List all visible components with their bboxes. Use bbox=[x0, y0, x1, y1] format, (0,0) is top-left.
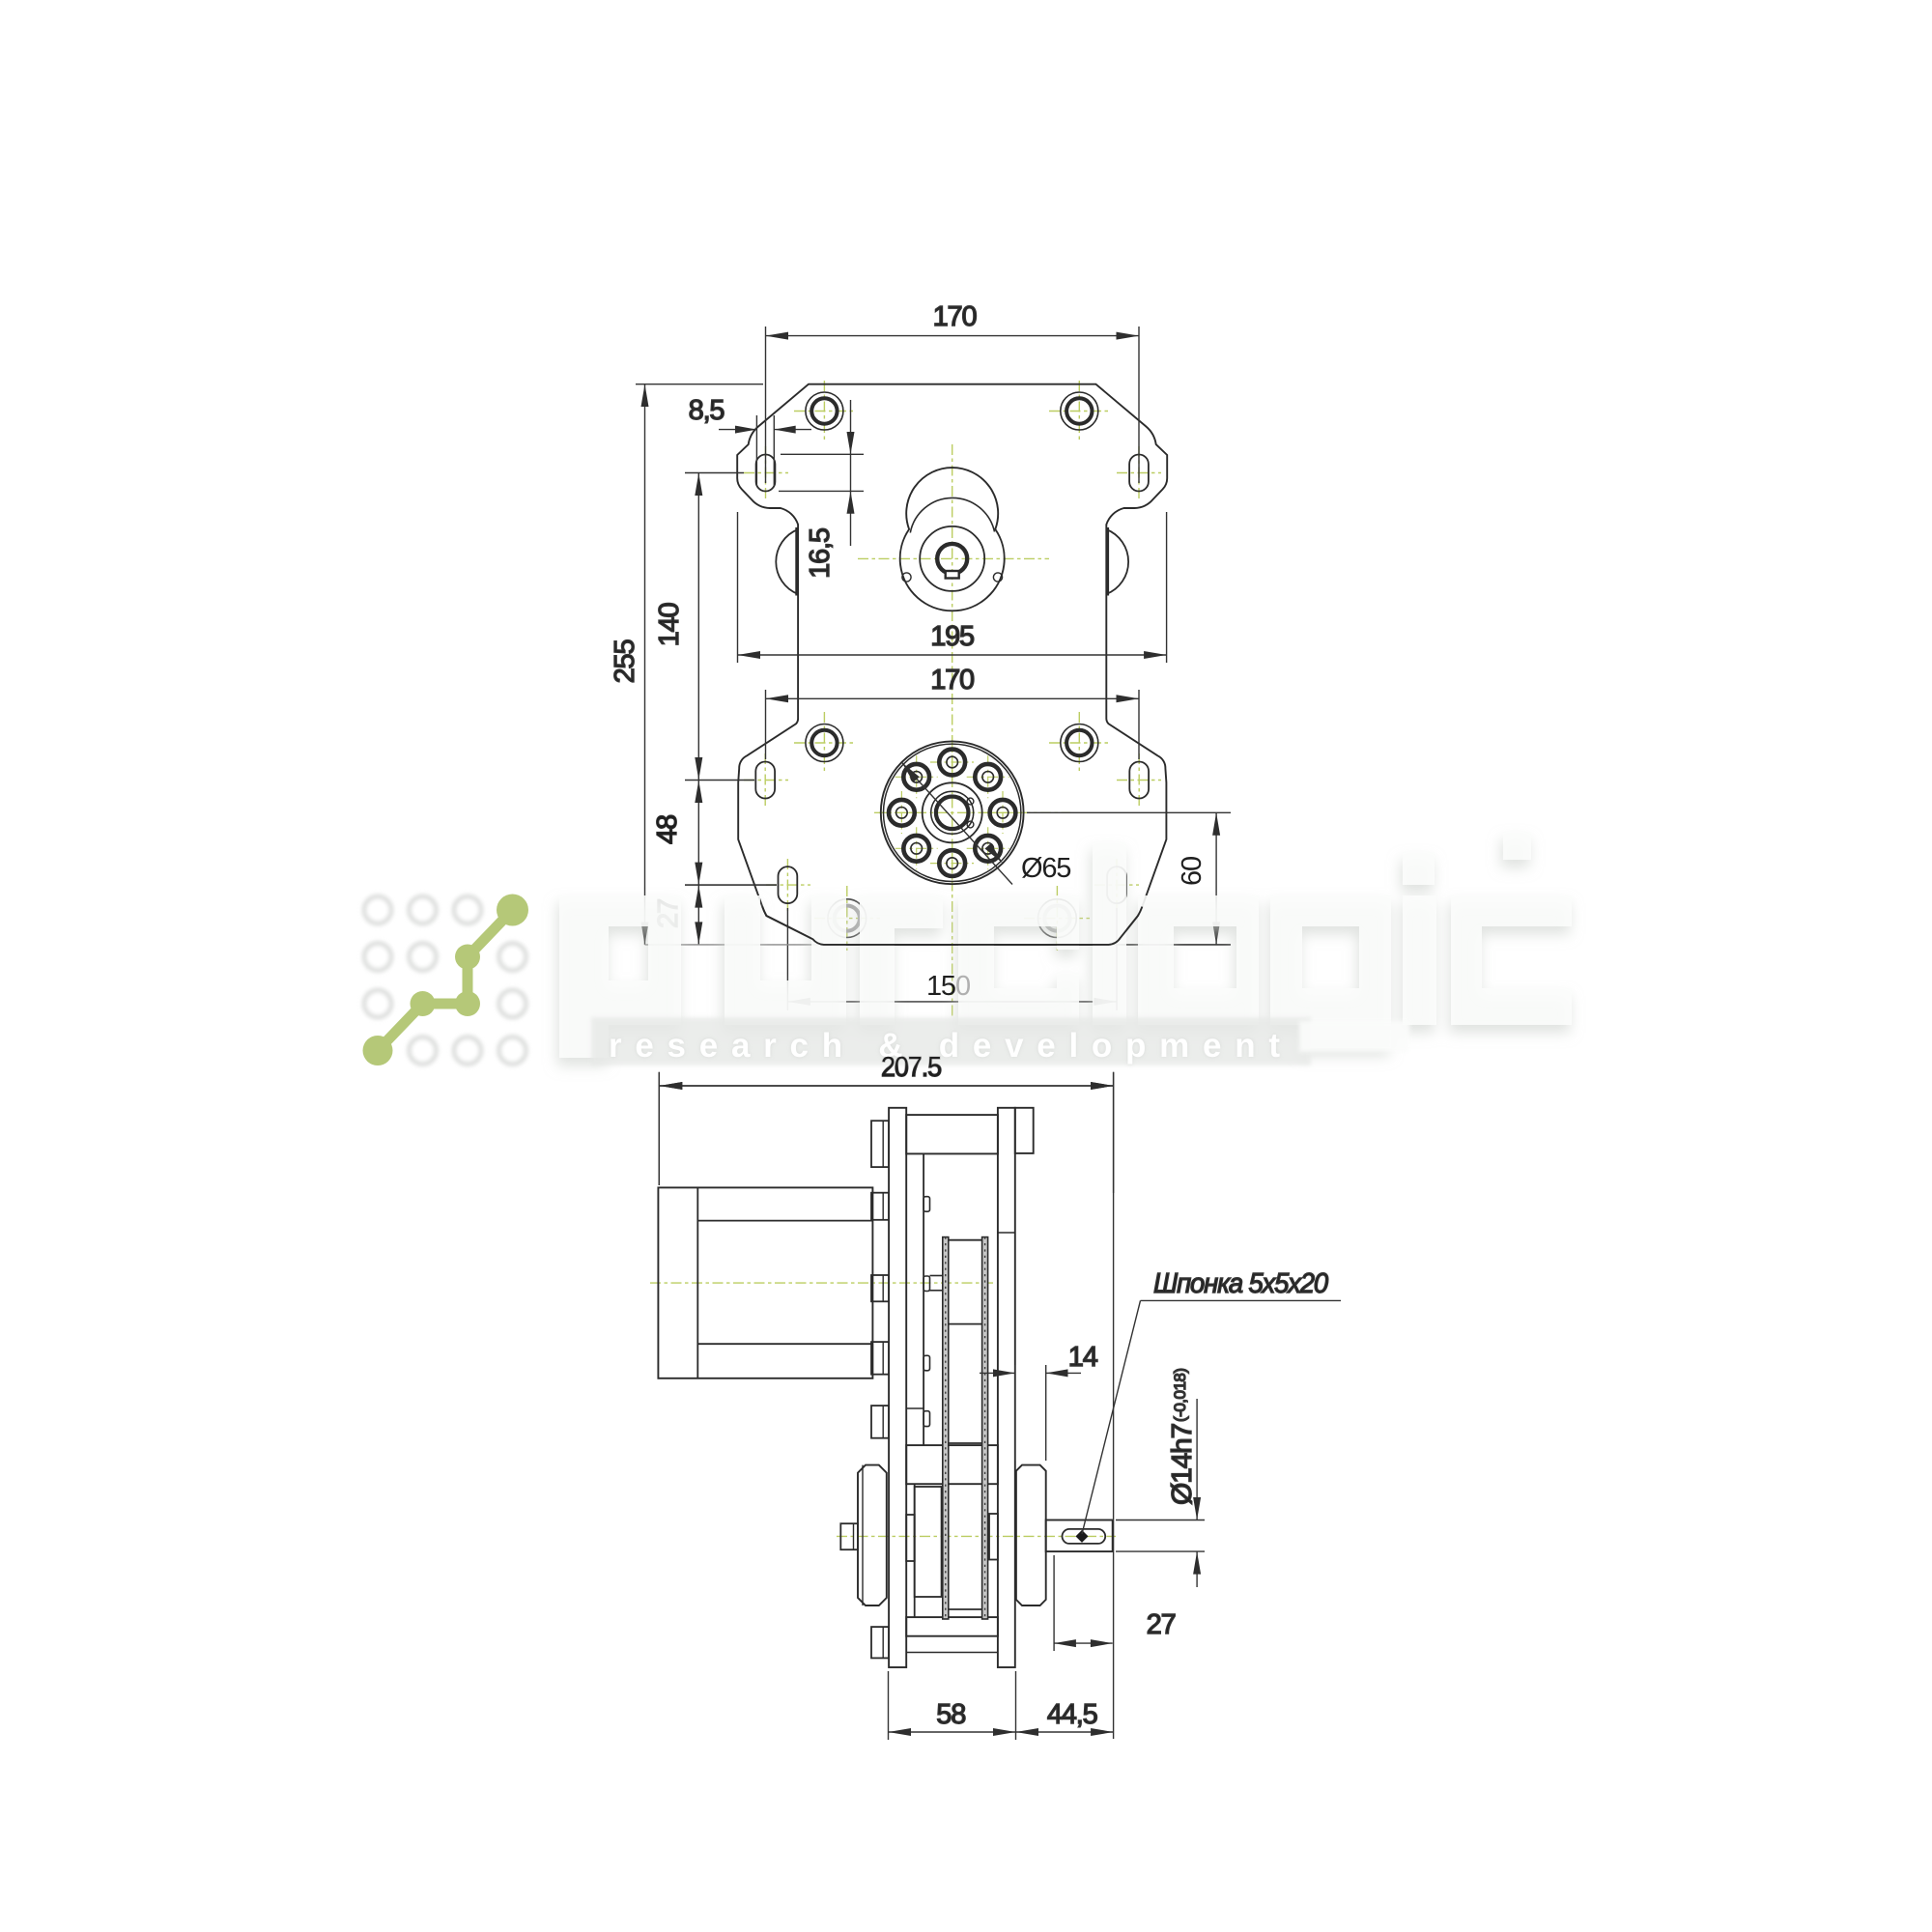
svg-text:16,5: 16,5 bbox=[805, 528, 836, 579]
svg-text:60: 60 bbox=[1177, 857, 1207, 886]
svg-text:0: 0 bbox=[955, 971, 970, 1002]
svg-text:(-0,018): (-0,018) bbox=[1171, 1368, 1189, 1422]
svg-text:14: 14 bbox=[1068, 1342, 1098, 1373]
svg-text:48: 48 bbox=[652, 815, 683, 844]
svg-text:140: 140 bbox=[654, 604, 685, 647]
svg-text:195: 195 bbox=[930, 621, 974, 652]
svg-text:170: 170 bbox=[930, 665, 974, 696]
svg-text:44,5: 44,5 bbox=[1047, 1699, 1097, 1730]
svg-text:8,5: 8,5 bbox=[689, 395, 724, 426]
svg-text:Ø14h7: Ø14h7 bbox=[1167, 1424, 1198, 1505]
svg-text:255: 255 bbox=[610, 640, 640, 684]
svg-text:Ø65: Ø65 bbox=[1021, 853, 1070, 884]
svg-text:207.5: 207.5 bbox=[881, 1052, 941, 1083]
svg-text:58: 58 bbox=[936, 1699, 965, 1730]
svg-text:research & development: research & development bbox=[609, 1027, 1280, 1065]
svg-text:27: 27 bbox=[1147, 1609, 1176, 1640]
svg-text:Шпонка 5х5х20: Шпонка 5х5х20 bbox=[1153, 1268, 1328, 1299]
svg-text:15: 15 bbox=[926, 971, 955, 1002]
svg-text:170: 170 bbox=[933, 301, 977, 332]
